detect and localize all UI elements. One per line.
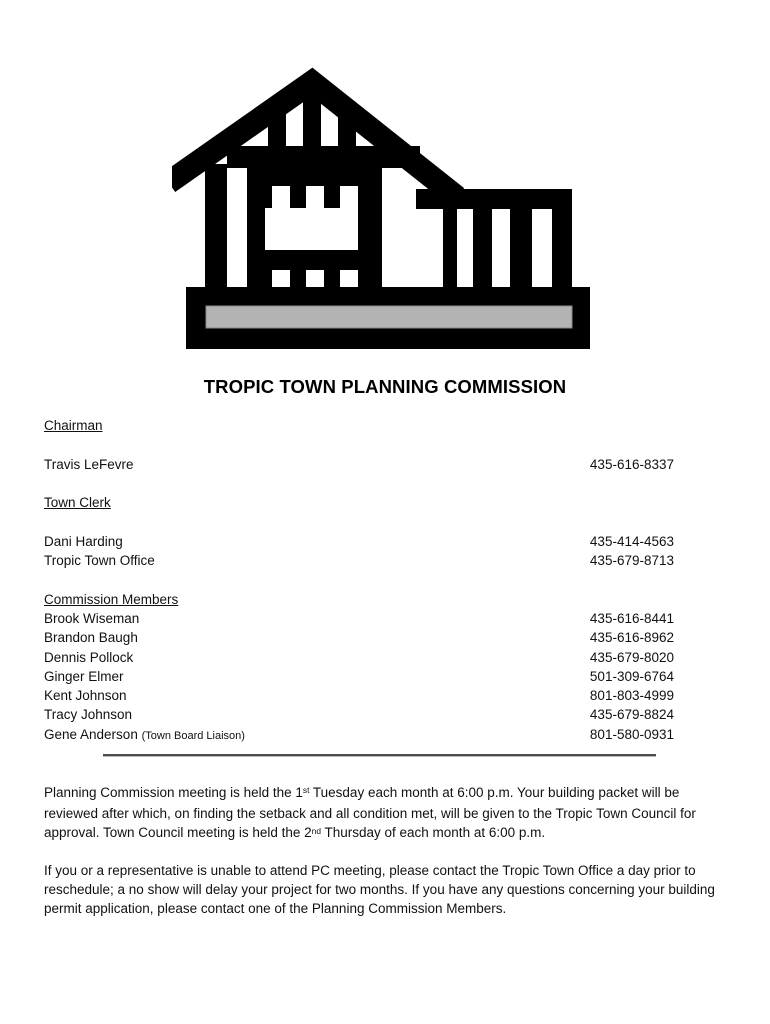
contact-row: Tracy Johnson 435-679-8824 bbox=[44, 705, 674, 724]
sill-band bbox=[265, 250, 358, 268]
fence-post bbox=[552, 209, 572, 289]
wall-post bbox=[205, 164, 227, 288]
contact-role-note: (Town Board Liaison) bbox=[142, 730, 245, 742]
contact-phone: 435-679-8020 bbox=[590, 648, 674, 667]
contact-row: Kent Johnson 801-803-4999 bbox=[44, 686, 674, 705]
paragraph-text: Planning Commission meeting is held the … bbox=[44, 785, 303, 800]
wall-post bbox=[247, 154, 265, 288]
contact-row: Brandon Baugh 435-616-8962 bbox=[44, 628, 674, 647]
contact-phone: 501-309-6764 bbox=[590, 667, 674, 686]
building-construction-icon bbox=[172, 60, 592, 350]
stud-gap bbox=[340, 186, 358, 208]
reschedule-info-paragraph: If you or a representative is unable to … bbox=[44, 861, 736, 919]
fence-post bbox=[473, 209, 492, 289]
meeting-info-paragraph: Planning Commission meeting is held the … bbox=[44, 783, 736, 845]
contact-name: Tracy Johnson bbox=[44, 705, 132, 724]
contact-row: Gene Anderson (Town Board Liaison) 801-5… bbox=[44, 725, 674, 744]
building-construction-svg bbox=[172, 60, 592, 350]
foundation-slab bbox=[206, 306, 572, 328]
ordinal-superscript: st bbox=[303, 785, 310, 795]
horizontal-divider bbox=[103, 754, 656, 757]
contact-name: Dani Harding bbox=[44, 532, 123, 551]
contact-row: Brook Wiseman 435-616-8441 bbox=[44, 609, 674, 628]
section-heading-town-clerk: Town Clerk bbox=[44, 493, 674, 512]
document-page: TROPIC TOWN PLANNING COMMISSION Chairman… bbox=[0, 0, 770, 1024]
contact-name: Brook Wiseman bbox=[44, 609, 139, 628]
contact-phone: 435-616-8337 bbox=[590, 455, 674, 474]
contact-row: Dennis Pollock 435-679-8020 bbox=[44, 648, 674, 667]
stud-gap bbox=[272, 270, 290, 287]
contact-name: Dennis Pollock bbox=[44, 648, 133, 667]
contact-name: Gene Anderson (Town Board Liaison) bbox=[44, 725, 245, 746]
contact-name: Kent Johnson bbox=[44, 686, 127, 705]
contact-phone: 435-414-4563 bbox=[590, 532, 674, 551]
page-title: TROPIC TOWN PLANNING COMMISSION bbox=[0, 374, 770, 399]
contact-row: Ginger Elmer 501-309-6764 bbox=[44, 667, 674, 686]
fence-rail bbox=[416, 189, 572, 209]
paragraph-text: Thursday of each month at 6:00 p.m. bbox=[321, 825, 545, 840]
contact-row: Travis LeFevre 435-616-8337 bbox=[44, 455, 674, 474]
section-heading-commission-members: Commission Members bbox=[44, 590, 674, 609]
contact-phone: 435-679-8713 bbox=[590, 551, 674, 570]
fence-post bbox=[443, 209, 457, 289]
wall-post bbox=[358, 154, 382, 288]
contact-name: Brandon Baugh bbox=[44, 628, 138, 647]
contact-name: Tropic Town Office bbox=[44, 551, 155, 570]
contact-name: Travis LeFevre bbox=[44, 455, 134, 474]
stud-gap bbox=[306, 186, 324, 208]
window-opening bbox=[265, 208, 358, 250]
contact-list: Chairman Travis LeFevre 435-616-8337 Tow… bbox=[44, 416, 674, 744]
contact-name: Ginger Elmer bbox=[44, 667, 124, 686]
contact-row: Tropic Town Office 435-679-8713 bbox=[44, 551, 674, 570]
contact-phone: 435-616-8441 bbox=[590, 609, 674, 628]
ordinal-superscript: nd bbox=[312, 826, 321, 836]
fence-post bbox=[510, 209, 532, 289]
contact-phone: 801-803-4999 bbox=[590, 686, 674, 705]
stud-gap bbox=[272, 186, 290, 208]
section-heading-chairman: Chairman bbox=[44, 416, 674, 435]
stud-gap bbox=[306, 270, 324, 287]
contact-name-text: Gene Anderson bbox=[44, 727, 138, 742]
contact-row: Dani Harding 435-414-4563 bbox=[44, 532, 674, 551]
contact-phone: 435-679-8824 bbox=[590, 705, 674, 724]
contact-phone: 435-616-8962 bbox=[590, 628, 674, 647]
stud-gap bbox=[340, 270, 358, 287]
contact-phone: 801-580-0931 bbox=[590, 725, 674, 744]
